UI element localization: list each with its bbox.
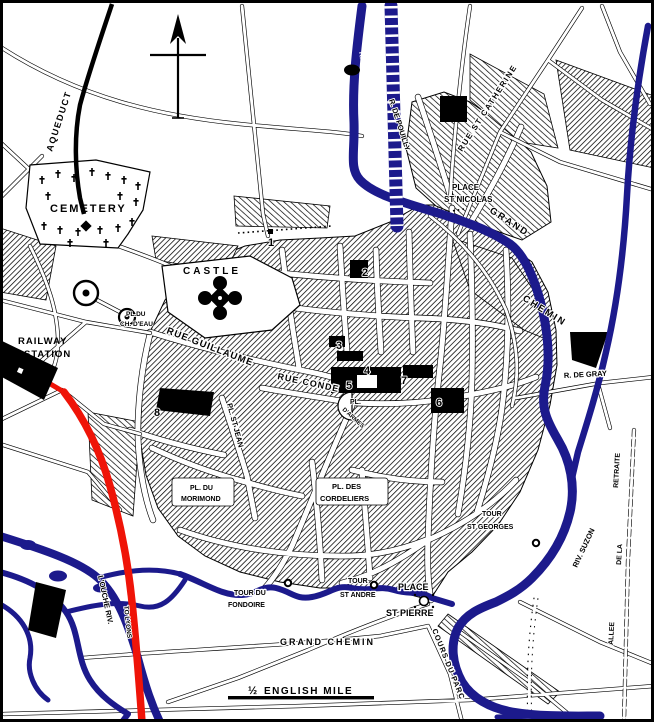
label-pl-cordeliers-2: CORDELIERS — [320, 494, 369, 503]
label-place-st-pierre-1: PLACE — [398, 582, 429, 592]
map-canvas: AQUEDUCT CEMETERY CASTLE RAILWAY STATION… — [0, 0, 654, 722]
marker-5: 5 — [346, 380, 352, 392]
marker-2: 2 — [362, 267, 368, 279]
marker-6: 6 — [436, 397, 442, 409]
marker-4: 4 — [364, 365, 371, 377]
label-de-la: DE LA — [616, 544, 624, 565]
label-pl-morimond-2: MORIMOND — [181, 496, 221, 503]
label-allee: ALLEE — [608, 621, 616, 645]
label-tour-st-georges-2: ST GEORGES — [467, 524, 514, 531]
label-tour-st-andre-1: TOUR — [348, 578, 368, 585]
marker-8: 8 — [154, 407, 160, 419]
label-tour-st-georges-1: TOUR — [482, 511, 502, 518]
label-cemetery: CEMETERY — [50, 203, 127, 215]
label-castle: CASTLE — [183, 266, 241, 277]
label-pl-morimond-1: PL. DU — [190, 485, 213, 492]
label-pl-chateau-eau-1: PL.DU — [126, 311, 146, 318]
marker-7: 7 — [401, 375, 407, 387]
label-place-st-nicolas-1: PLACE — [452, 183, 480, 192]
label-pl-cordeliers-1: PL. DES — [332, 482, 361, 491]
label-place-st-nicolas-2: ST NICOLAS — [444, 195, 493, 204]
label-pl-armes-1: PL. — [350, 399, 361, 406]
label-railway-1: RAILWAY — [18, 336, 67, 347]
label-tour-fondoire-1: TOUR DU — [234, 590, 266, 597]
label-grand-chemin-bottom: GRAND CHEMIN — [280, 637, 375, 647]
label-tour-fondoire-2: FONDOIRE — [228, 602, 265, 609]
bottom-stream — [497, 715, 600, 717]
label-tour-st-andre-2: ST ANDRE — [340, 592, 376, 599]
marker-1: 1 — [268, 237, 274, 249]
label-place-st-pierre-2: ST PIERRE — [386, 608, 434, 618]
label-scale-fraction: ½ — [248, 685, 257, 697]
marker-3: 3 — [336, 340, 342, 352]
label-pl-chateau-eau-2: CH. D'EAU — [120, 321, 153, 328]
label-railway-2: STATION — [24, 349, 71, 360]
city-map: AQUEDUCT CEMETERY CASTLE RAILWAY STATION… — [0, 0, 654, 722]
label-scale: ENGLISH MILE — [264, 686, 353, 697]
